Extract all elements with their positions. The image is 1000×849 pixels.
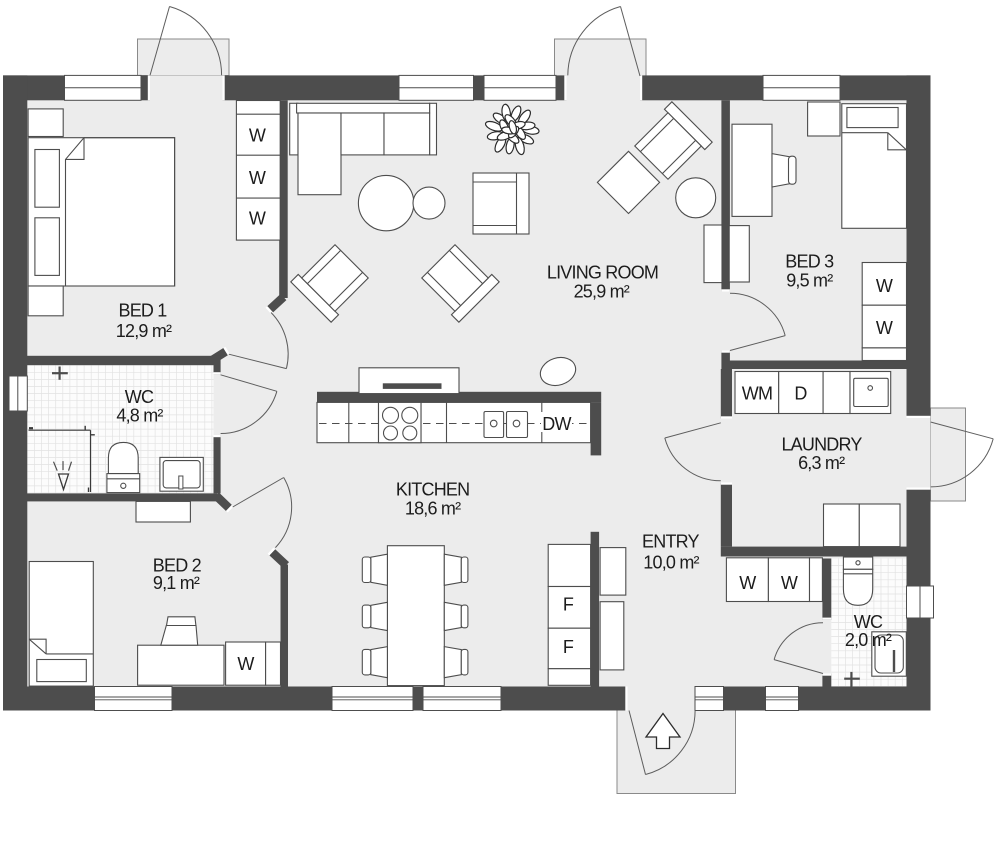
svg-text:10,0 m²: 10,0 m² (643, 553, 699, 573)
svg-text:12,9 m²: 12,9 m² (116, 321, 172, 341)
svg-text:LIVING ROOM: LIVING ROOM (547, 263, 658, 283)
svg-text:DW: DW (542, 414, 571, 434)
svg-text:LAUNDRY: LAUNDRY (781, 434, 862, 454)
svg-text:W: W (781, 573, 798, 593)
svg-text:2,0 m²: 2,0 m² (845, 630, 892, 650)
svg-text:6,3 m²: 6,3 m² (798, 453, 845, 473)
svg-text:W: W (249, 126, 266, 146)
svg-text:9,1 m²: 9,1 m² (153, 573, 200, 593)
svg-text:WC: WC (125, 387, 154, 407)
svg-text:4,8 m²: 4,8 m² (116, 406, 163, 426)
svg-text:WC: WC (854, 612, 883, 632)
svg-text:ENTRY: ENTRY (642, 532, 699, 552)
svg-text:9,5 m²: 9,5 m² (786, 270, 833, 290)
svg-text:WM: WM (742, 384, 772, 404)
svg-text:25,9 m²: 25,9 m² (574, 281, 630, 301)
svg-text:18,6 m²: 18,6 m² (405, 498, 461, 518)
svg-text:F: F (563, 595, 574, 615)
svg-text:BED 3: BED 3 (785, 252, 834, 272)
svg-text:W: W (237, 654, 254, 674)
svg-text:W: W (249, 209, 266, 229)
svg-text:W: W (249, 168, 266, 188)
svg-text:W: W (876, 276, 893, 296)
svg-text:BED 1: BED 1 (118, 301, 167, 321)
svg-text:W: W (876, 318, 893, 338)
svg-text:D: D (794, 384, 807, 404)
svg-text:KITCHEN: KITCHEN (396, 480, 469, 500)
svg-text:W: W (739, 573, 756, 593)
svg-text:F: F (563, 637, 574, 657)
